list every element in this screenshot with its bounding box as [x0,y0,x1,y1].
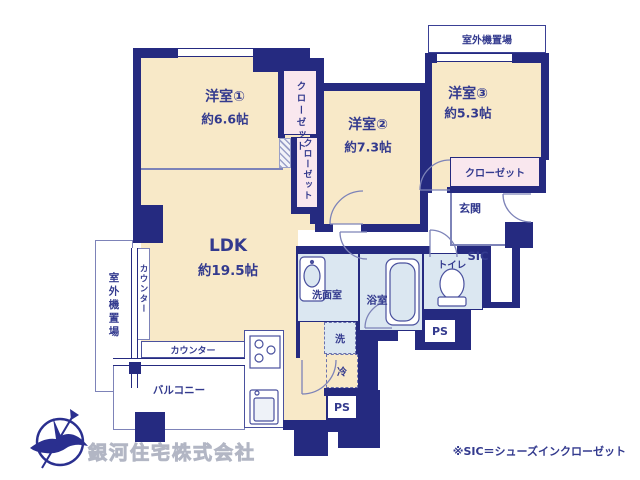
toilet-label: トイレ [438,257,467,271]
entrance-label: 玄関 [459,200,481,216]
company-name: 銀河住宅株式会社 [88,438,256,465]
ldk-name: LDK [209,236,247,256]
closet-lower-label: クローゼット [301,138,314,206]
fixtures [250,257,466,424]
balcony-label: バルコニー [153,383,205,398]
outdoor-left-label: 室外機置場 [107,272,122,352]
outdoor-top-label: 室外機置場 [462,32,512,47]
closet-west3-label: クローゼット [465,165,525,180]
door-arc-western3 [420,160,450,190]
counter-left-label: カウンター [137,264,149,320]
ldk-size: 約19.5帖 [198,259,258,279]
toilet-icon [438,269,466,306]
sic-label: SIC [467,249,488,263]
door-arc-western2 [330,191,363,224]
logo-arrowhead [70,409,79,420]
western2-name: 洋室② [348,114,388,134]
fridge-label: 冷 [337,364,347,379]
bathtub-icon [386,259,419,325]
company-logo [30,409,88,468]
counter-bottom-label: カウンター [170,344,215,357]
sic-footnote: ※SIC＝シューズインクローゼット [453,443,626,459]
doors-and-fixtures-layer [0,0,640,480]
closet-upper-label: クローゼット [294,81,307,123]
door-arc-toilet [430,230,457,257]
kitchen-sink-icon [250,390,278,424]
door-arc-ldk [340,232,367,259]
door-arc-balcony [302,360,336,394]
washroom-label: 洗面室 [312,287,342,302]
western3-name: 洋室③ [448,83,488,103]
floor-plan: PS PS [0,0,640,480]
western1-size: 約6.6帖 [201,109,248,128]
door-arc-entrance [503,194,531,222]
western3-size: 約5.3帖 [444,103,491,122]
western2-size: 約7.3帖 [344,137,391,156]
bath-label: 浴室 [367,293,388,308]
stove-icon [250,336,280,368]
washer-label: 洗 [335,331,345,346]
western1-name: 洋室① [205,86,245,106]
